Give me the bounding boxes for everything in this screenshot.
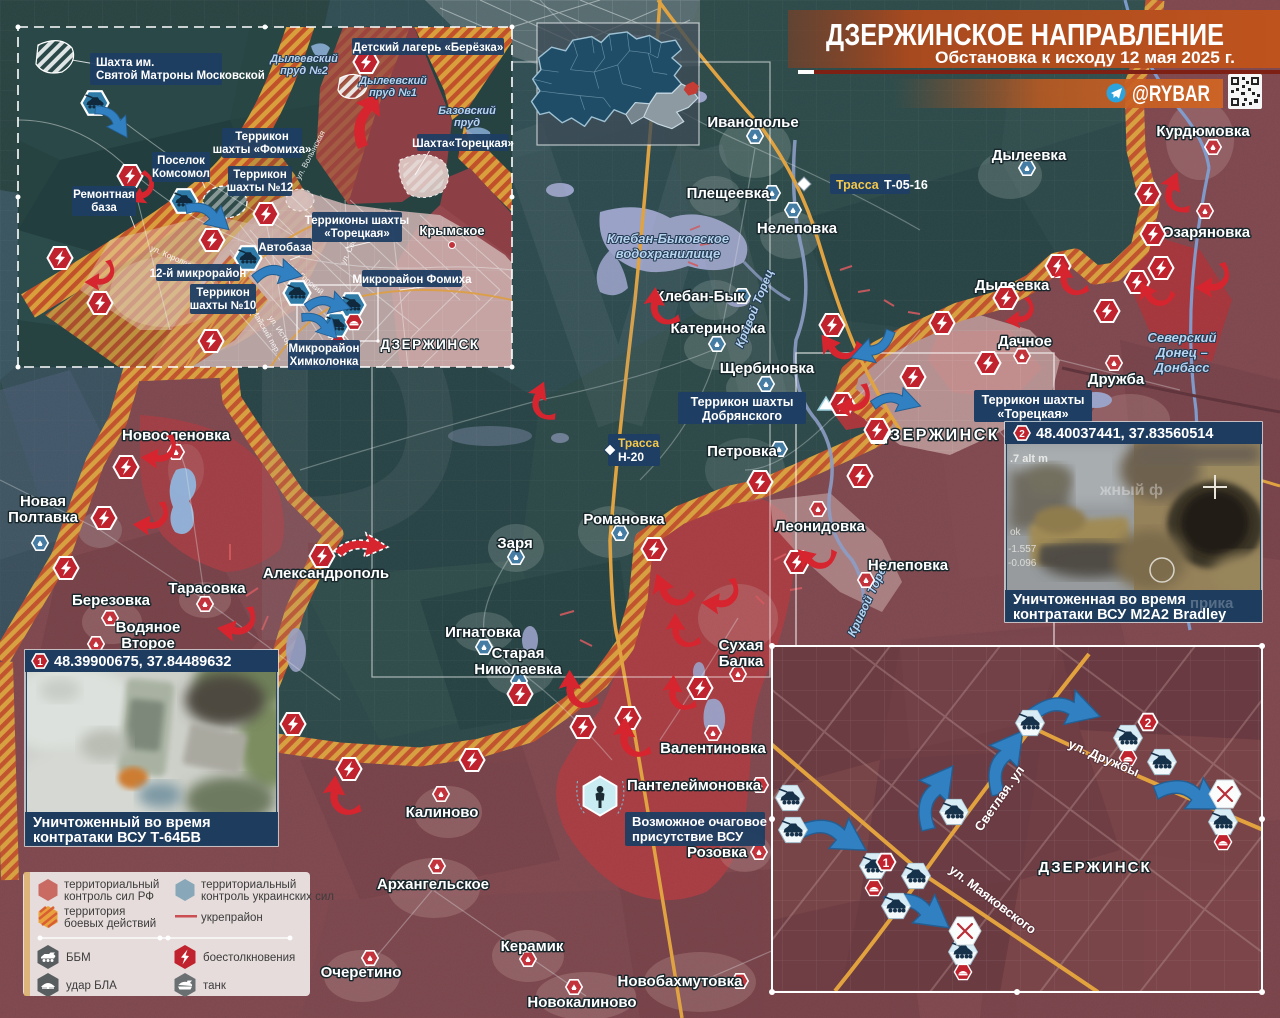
svg-text:«Торецкая»: «Торецкая» — [324, 228, 389, 240]
svg-text:@RYBAR: @RYBAR — [1132, 81, 1210, 106]
svg-text:Т-05-16: Т-05-16 — [884, 178, 928, 192]
svg-text:Донец –: Донец – — [1155, 345, 1208, 360]
svg-text:Химколонка: Химколонка — [290, 356, 359, 368]
svg-text:«Торецкая»: «Торецкая» — [997, 407, 1068, 421]
svg-text:контроль украинских сил: контроль украинских сил — [201, 891, 334, 903]
svg-text:Уничтоженная во время: Уничтоженная во время — [1013, 592, 1186, 608]
svg-text:Новая: Новая — [20, 493, 66, 510]
svg-text:ДЗЕРЖИНСК: ДЗЕРЖИНСК — [380, 337, 479, 352]
svg-text:1: 1 — [883, 856, 890, 870]
svg-text:присутствие ВСУ: присутствие ВСУ — [632, 829, 744, 844]
svg-text:Нелеповка: Нелеповка — [868, 557, 949, 574]
svg-text:Архангельское: Архангельское — [377, 876, 489, 893]
svg-text:шахты №10: шахты №10 — [190, 300, 257, 312]
svg-text:база: база — [91, 202, 117, 214]
svg-text:Озаряновка: Озаряновка — [1162, 224, 1251, 241]
svg-text:Тарасовка: Тарасовка — [168, 580, 246, 597]
svg-text:территориальный: территориальный — [64, 879, 159, 891]
svg-text:Заря: Заря — [497, 535, 532, 552]
svg-text:Пантелеймоновка: Пантелеймоновка — [627, 777, 762, 794]
svg-text:Розовка: Розовка — [687, 844, 748, 861]
svg-text:ДЗЕРЖИНСКОЕ НАПРАВЛЕНИЕ: ДЗЕРЖИНСКОЕ НАПРАВЛЕНИЕ — [826, 17, 1224, 52]
svg-text:Комсомол: Комсомол — [152, 168, 210, 180]
svg-text:Добрянского: Добрянского — [702, 409, 782, 423]
svg-text:пруд №2: пруд №2 — [280, 65, 328, 77]
svg-text:Детский лагерь «Берёзка»: Детский лагерь «Берёзка» — [353, 42, 503, 54]
svg-text:Калиново: Калиново — [406, 804, 479, 821]
svg-text:Террикон шахты: Террикон шахты — [691, 395, 794, 409]
svg-text:ББМ: ББМ — [66, 952, 91, 964]
svg-text:Террикон: Террикон — [233, 169, 287, 181]
svg-text:прика: прика — [1190, 595, 1234, 612]
svg-text:Автобаза: Автобаза — [258, 242, 312, 254]
svg-text:Уничтоженный во время: Уничтоженный во время — [33, 815, 211, 831]
svg-text:Курдюмовка: Курдюмовка — [1156, 123, 1250, 140]
svg-text:Микрорайон Фомиха: Микрорайон Фомиха — [352, 274, 472, 286]
svg-text:Н-20: Н-20 — [618, 450, 644, 464]
svg-text:Дылеевский: Дылеевский — [358, 75, 427, 87]
svg-text:Керамик: Керамик — [501, 938, 564, 955]
svg-text:Террикон: Террикон — [235, 131, 289, 143]
svg-text:48.39900675, 37.84489632: 48.39900675, 37.84489632 — [54, 654, 231, 670]
svg-text:Трасса: Трасса — [836, 178, 880, 192]
svg-text:территория: территория — [64, 906, 125, 918]
svg-text:ДЗЕРЖИНСК: ДЗЕРЖИНСК — [1038, 859, 1151, 876]
svg-text:48.40037441, 37.83560514: 48.40037441, 37.83560514 — [1036, 426, 1213, 442]
svg-text:.7 alt m: .7 alt m — [1010, 453, 1048, 465]
svg-text:Крымское: Крымское — [419, 223, 484, 238]
svg-text:жный ф: жный ф — [1099, 482, 1163, 499]
svg-text:Террикон шахты: Террикон шахты — [982, 393, 1085, 407]
svg-text:Новооленовка: Новооленовка — [122, 427, 231, 444]
svg-text:Поселок: Поселок — [157, 155, 205, 167]
svg-text:Березовка: Березовка — [72, 592, 151, 609]
svg-text:Новобахмутовка: Новобахмутовка — [618, 973, 744, 990]
svg-text:боестолкновения: боестолкновения — [203, 952, 295, 964]
svg-text:Дылеевка: Дылеевка — [992, 147, 1067, 164]
svg-text:Шахта им.: Шахта им. — [96, 57, 154, 69]
svg-text:Обстановка к исходу 12 мая 202: Обстановка к исходу 12 мая 2025 г. — [935, 48, 1235, 67]
svg-text:Старая: Старая — [492, 645, 545, 662]
svg-text:12-й микрорайон: 12-й микрорайон — [150, 268, 247, 280]
svg-text:Плещеевка: Плещеевка — [687, 185, 771, 202]
svg-text:Трасса: Трасса — [618, 436, 659, 450]
svg-text:ok: ok — [1010, 527, 1022, 538]
svg-text:пруд №1: пруд №1 — [369, 87, 417, 99]
svg-text:контроль сил РФ: контроль сил РФ — [64, 891, 154, 903]
svg-text:-0.096: -0.096 — [1008, 558, 1037, 569]
svg-text:Террикон: Террикон — [196, 287, 250, 299]
svg-text:Полтавка: Полтавка — [8, 509, 79, 526]
svg-text:пруд: пруд — [454, 117, 480, 129]
svg-text:Ремонтная: Ремонтная — [73, 189, 135, 201]
svg-text:Сухая: Сухая — [719, 637, 764, 654]
svg-text:-1.557: -1.557 — [1008, 544, 1037, 555]
svg-text:Дачное: Дачное — [998, 333, 1052, 350]
svg-text:Возможное очаговое: Возможное очаговое — [632, 814, 767, 829]
svg-text:Очеретино: Очеретино — [321, 964, 402, 981]
svg-text:Романовка: Романовка — [583, 511, 665, 528]
svg-text:2: 2 — [1145, 716, 1152, 730]
svg-text:контратаки ВСУ Т-64БВ: контратаки ВСУ Т-64БВ — [33, 830, 201, 846]
svg-text:Новокалиново: Новокалиново — [527, 994, 636, 1011]
svg-text:Николаевка: Николаевка — [474, 661, 562, 678]
svg-text:укрепрайон: укрепрайон — [201, 912, 263, 924]
svg-text:территориальный: территориальный — [201, 879, 296, 891]
svg-text:Петровка: Петровка — [707, 443, 777, 460]
svg-text:Дылеевский: Дылеевский — [269, 53, 338, 65]
svg-text:Донбасс: Донбасс — [1154, 360, 1211, 375]
svg-text:водохранилище: водохранилище — [616, 246, 720, 261]
svg-text:Леонидовка: Леонидовка — [775, 518, 866, 535]
svg-text:танк: танк — [203, 980, 227, 992]
svg-text:шахты «Фомиха»: шахты «Фомиха» — [213, 144, 312, 156]
svg-text:1: 1 — [37, 657, 43, 668]
svg-text:шахты №12: шахты №12 — [227, 182, 294, 194]
svg-text:Шахта«Торецкая»: Шахта«Торецкая» — [412, 138, 514, 150]
svg-text:Дружба: Дружба — [1088, 371, 1145, 388]
svg-text:Щербиновка: Щербиновка — [720, 360, 815, 377]
svg-text:Водяное: Водяное — [116, 619, 181, 636]
svg-text:Игнатовка: Игнатовка — [445, 624, 521, 641]
svg-text:Терриконы шахты: Терриконы шахты — [305, 215, 410, 227]
svg-text:Святой Матроны Московской: Святой Матроны Московской — [96, 70, 265, 82]
svg-text:боевых действий: боевых действий — [64, 918, 156, 930]
svg-text:2: 2 — [1019, 429, 1025, 440]
svg-text:Клебан-Быковское: Клебан-Быковское — [607, 231, 729, 246]
svg-text:Иванополье: Иванополье — [707, 114, 798, 131]
svg-text:Базовский: Базовский — [438, 105, 496, 117]
svg-text:Микрорайон: Микрорайон — [289, 343, 360, 355]
svg-text:Балка: Балка — [719, 653, 764, 670]
svg-text:Клебан-Бык: Клебан-Бык — [655, 288, 745, 305]
svg-text:Нелеповка: Нелеповка — [757, 220, 838, 237]
svg-text:Северский: Северский — [1147, 330, 1216, 345]
svg-text:Валентиновка: Валентиновка — [660, 740, 766, 757]
svg-text:ДЗЕРЖИНСК: ДЗЕРЖИНСК — [876, 427, 1000, 444]
svg-text:удар БЛА: удар БЛА — [66, 980, 117, 992]
